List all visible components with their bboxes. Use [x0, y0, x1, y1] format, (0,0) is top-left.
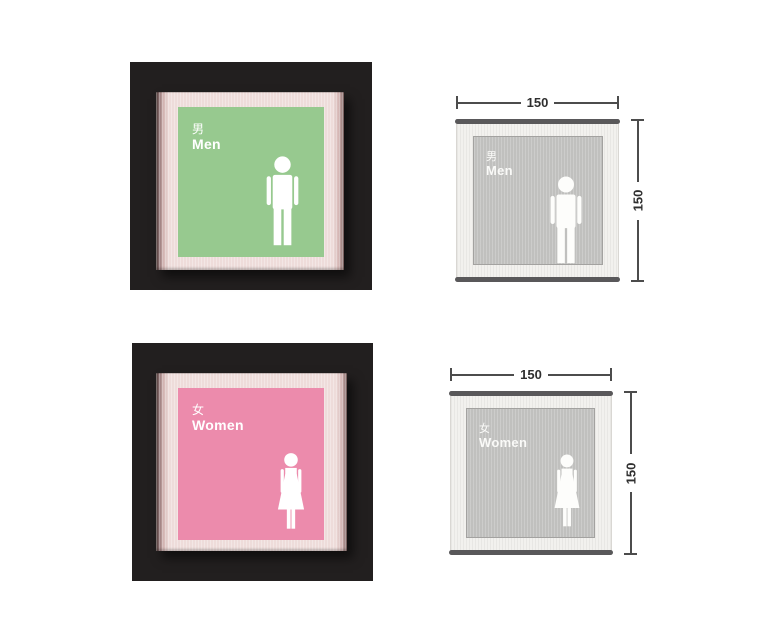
women-mockup-backdrop: 女 Women: [132, 343, 373, 581]
dimension-line: [548, 374, 610, 376]
dimension-tick: [631, 280, 644, 282]
men-label: Men: [192, 136, 221, 152]
signage-design-sheet: 男 Men 150 男 Men: [0, 0, 770, 620]
men-cjk-label: 男: [486, 151, 513, 163]
women-dimension-drawing: 150 女 Women 150: [439, 360, 654, 568]
dimension-line: [554, 102, 617, 104]
men-width-dimension-label: 150: [521, 96, 555, 109]
dimension-line: [637, 121, 639, 182]
men-mockup-sign-plate: 男 Men: [156, 92, 344, 270]
dimension-line: [630, 393, 632, 454]
dimension-tick: [610, 368, 612, 381]
men-label: Men: [486, 163, 513, 178]
women-mockup-sign-plate: 女 Women: [156, 373, 347, 551]
men-width-dimension: 150: [456, 96, 619, 109]
men-cjk-label: 男: [192, 123, 221, 136]
sign-top-rail: [449, 391, 613, 396]
dimension-line: [458, 102, 521, 104]
men-height-dimension-label: 150: [630, 190, 645, 212]
women-cjk-label: 女: [192, 404, 244, 417]
women-height-dimension-label-wrap: 150: [624, 454, 637, 492]
dimension-line: [637, 220, 639, 281]
women-sign-text: 女 Women: [192, 404, 244, 433]
male-pictogram-icon: [262, 155, 303, 246]
sign-top-rail: [455, 119, 620, 124]
female-pictogram-icon: [271, 445, 311, 537]
men-drawing-text: 男 Men: [486, 151, 513, 178]
women-drawing-text: 女 Women: [479, 423, 527, 450]
men-mockup-backdrop: 男 Men: [130, 62, 372, 290]
dimension-line: [630, 492, 632, 553]
men-height-dimension-label-wrap: 150: [631, 182, 644, 220]
female-pictogram-icon: [548, 443, 586, 538]
men-height-dimension: 150: [631, 119, 644, 282]
dimension-tick: [617, 96, 619, 109]
women-cjk-label: 女: [479, 423, 527, 435]
men-sign-panel: 男 Men: [178, 107, 324, 257]
women-drawing-sign: 女 Women: [450, 391, 612, 555]
women-drawing-panel: 女 Women: [466, 408, 595, 538]
sign-bottom-rail: [455, 277, 620, 282]
women-height-dimension: 150: [624, 391, 637, 555]
men-sign-text: 男 Men: [192, 123, 221, 152]
women-label: Women: [192, 417, 244, 433]
sign-bottom-rail: [449, 550, 613, 555]
women-width-dimension-label: 150: [514, 368, 548, 381]
women-height-dimension-label: 150: [623, 462, 638, 484]
male-pictogram-icon: [546, 175, 586, 264]
dimension-line: [452, 374, 514, 376]
men-drawing-sign: 男 Men: [456, 119, 619, 282]
women-label: Women: [479, 435, 527, 450]
men-drawing-panel: 男 Men: [473, 136, 603, 265]
dimension-tick: [624, 553, 637, 555]
women-width-dimension: 150: [450, 368, 612, 381]
men-dimension-drawing: 150 男 Men 150: [445, 88, 660, 296]
women-sign-panel: 女 Women: [178, 388, 324, 540]
